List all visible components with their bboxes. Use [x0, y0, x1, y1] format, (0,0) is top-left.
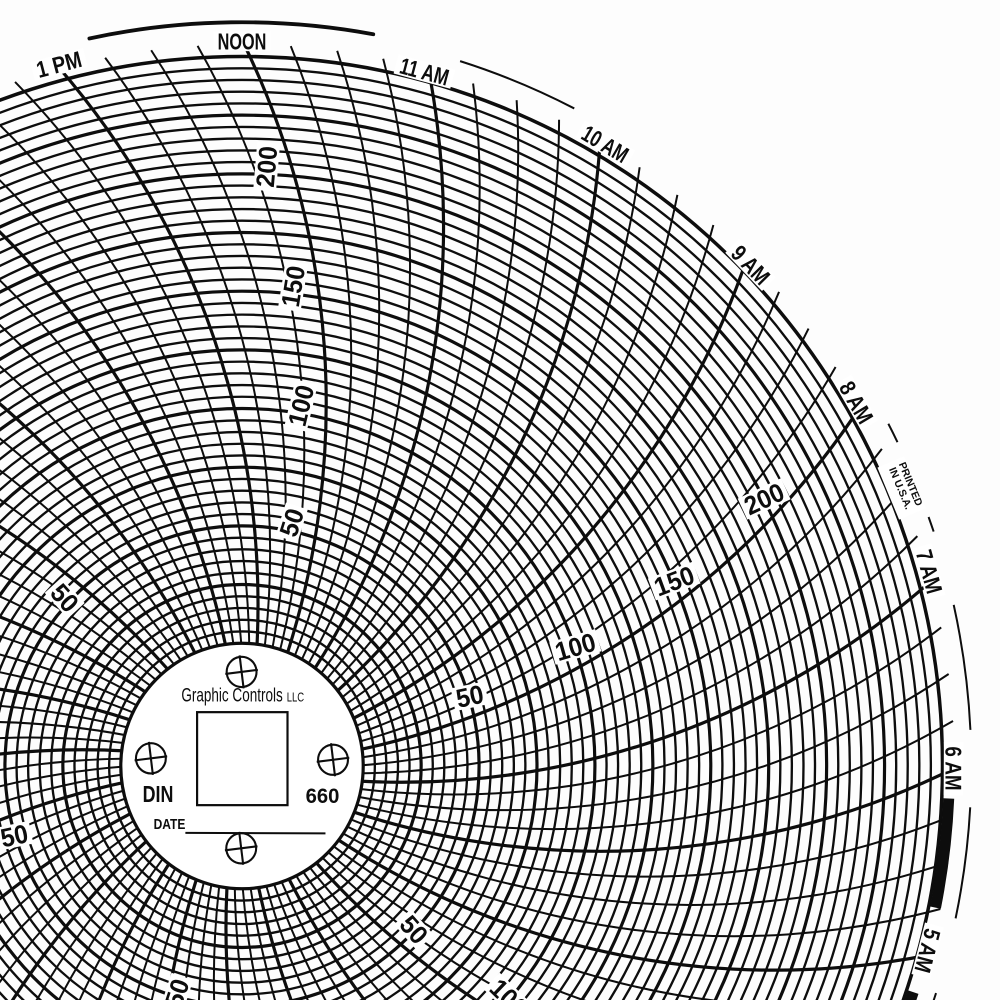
svg-text:DATE: DATE — [154, 816, 186, 833]
svg-text:DIN: DIN — [143, 781, 174, 807]
svg-text:LLC: LLC — [287, 691, 304, 705]
svg-text:6 AM: 6 AM — [940, 746, 966, 790]
svg-text:Graphic Controls: Graphic Controls — [181, 685, 282, 706]
svg-text:660: 660 — [306, 784, 340, 808]
svg-text:NOON: NOON — [218, 28, 267, 54]
svg-text:200: 200 — [250, 145, 283, 189]
